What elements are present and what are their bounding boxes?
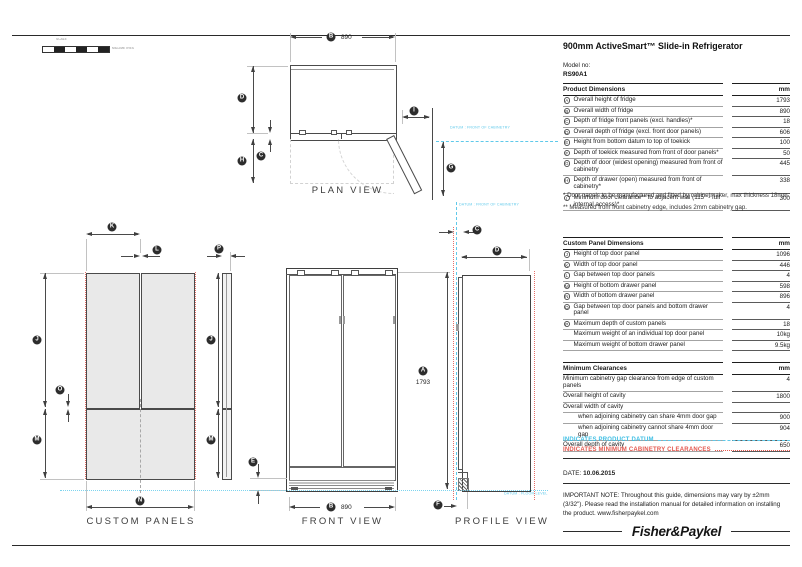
row-label: Maximum weight of an individual top door…: [563, 330, 723, 341]
row-value: 1096: [732, 250, 790, 261]
profile-handle-tab: [456, 324, 459, 331]
dimension-line: [45, 273, 46, 407]
row-label: BOverall width of fridge: [563, 107, 723, 118]
row-description: Height from bottom datum to top of toeki…: [574, 139, 691, 146]
model-number: RS90A1: [563, 71, 790, 78]
dimension-letter-badge: F: [564, 150, 571, 157]
dim-marker-a: A: [419, 367, 428, 376]
dim-marker-m: M: [207, 436, 216, 445]
table-row: BOverall width of fridge890: [563, 107, 790, 118]
table-row: DOverall depth of fridge (excl. front do…: [563, 128, 790, 139]
dim-marker-c: C: [473, 226, 482, 235]
dimension-letter-badge: D: [564, 129, 571, 136]
dim-marker-b: B: [327, 33, 336, 42]
dimension-letter-badge: A: [564, 97, 571, 104]
dim-marker-d: D: [238, 94, 247, 103]
front-height-value: 1793: [413, 379, 433, 386]
row-description: Width of bottom drawer panel: [574, 293, 655, 300]
row-label: Maximum weight of bottom drawer panel: [563, 341, 723, 352]
extension-line: [140, 239, 141, 253]
row-value: 18: [732, 117, 790, 128]
arrowhead: [451, 504, 457, 508]
date-row: DATE: 10.06.2015: [563, 470, 790, 477]
row-label: KWidth of top door panel: [563, 261, 723, 272]
door-edge-tab: [339, 316, 341, 324]
row-label: EHeight from bottom datum to top of toek…: [563, 138, 723, 149]
dimension-line: [443, 142, 444, 196]
plan-width-value: 890: [341, 34, 352, 41]
table-row: Minimum cabinetry gap clearance from edg…: [563, 375, 790, 392]
row-label: AOverall height of fridge: [563, 96, 723, 107]
panel-edge-inner-line: [226, 274, 227, 477]
table-row: EHeight from bottom datum to top of toek…: [563, 138, 790, 149]
arrowhead: [216, 273, 220, 279]
row-label: when adjoining cabinetry can share 4mm d…: [563, 413, 723, 424]
dimension-letter-badge: P: [564, 321, 571, 328]
extension-line: [40, 273, 84, 274]
footnote: * Door panels to be manufactured and fit…: [563, 192, 790, 200]
dim-marker-j: J: [207, 336, 216, 345]
plan-hinge: [331, 130, 337, 135]
extension-line: [250, 478, 287, 479]
legend-datum-label: INDICATES PRODUCT DATUM: [563, 437, 654, 443]
dimension-line: [293, 37, 322, 38]
arrowhead: [268, 127, 272, 133]
row-description: Depth of toekick measured from front of …: [574, 150, 719, 157]
datum-line: [436, 141, 558, 142]
table-row: PMaximum depth of custom panels18: [563, 320, 790, 331]
row-description: Minimum cabinetry gap clearance from edg…: [563, 376, 723, 390]
table-body: JHeight of top door panel1096KWidth of t…: [563, 250, 790, 351]
extension-line: [467, 492, 468, 509]
table-row: FDepth of toekick measured from front of…: [563, 149, 790, 160]
dimension-line: [236, 256, 245, 257]
dimension-letter-badge: M: [564, 283, 571, 290]
row-description: Depth of drawer (open) measured from fro…: [574, 177, 724, 191]
row-value: 100: [732, 138, 790, 149]
extension-line: [194, 481, 195, 511]
door-edge-tab: [393, 316, 395, 324]
date-value: 10.06.2015: [583, 470, 615, 477]
dimension-letter-badge: B: [564, 108, 571, 115]
row-description: Height of bottom drawer panel: [574, 283, 657, 290]
front-left-door: [289, 275, 342, 467]
arrowhead: [43, 401, 47, 407]
spec-sheet-page: SCALE MILLIMETRES B 890 D H C: [0, 0, 802, 567]
arrowhead: [43, 472, 47, 478]
table-unit: mm: [732, 362, 790, 375]
datum-floor-label: DATUM : FLOOR LEVEL: [504, 492, 548, 496]
arrowhead: [43, 409, 47, 415]
dimension-letter-badge: E: [564, 139, 571, 146]
row-label: OGap between top door panels and bottom …: [563, 303, 723, 320]
table-title: Product Dimensions: [563, 83, 723, 96]
clearance-line: [534, 271, 535, 500]
dim-marker-g: G: [447, 164, 456, 173]
dim-marker-c: C: [257, 152, 266, 161]
legend-datum-line-sample: [658, 440, 790, 441]
extension-line: [395, 497, 396, 511]
arrowhead: [448, 230, 454, 234]
panel-edge-view-top: [222, 273, 232, 409]
table-row: AOverall height of fridge1793: [563, 96, 790, 107]
dim-marker-m: M: [33, 436, 42, 445]
table-row: Maximum weight of an individual top door…: [563, 330, 790, 341]
dimension-line: [270, 120, 271, 127]
legend-clearances-row: INDICATES MINIMUM CABINETRY CLEARANCES: [563, 447, 790, 453]
row-description: Overall height of fridge: [574, 97, 636, 104]
plan-adjacent-wall: [432, 108, 433, 200]
row-value: 1793: [732, 96, 790, 107]
extension-line: [40, 479, 84, 480]
model-block: Model no: RS90A1: [563, 62, 790, 78]
dimension-line: [270, 145, 271, 152]
arrowhead: [134, 232, 140, 236]
profile-toekick-line: [458, 472, 467, 473]
table-title: Custom Panel Dimensions: [563, 237, 723, 250]
dimension-letter-badge: H: [564, 177, 571, 184]
arrowhead: [216, 472, 220, 478]
table-row: Maximum weight of bottom drawer panel9.5…: [563, 341, 790, 352]
table-row: OGap between top door panels and bottom …: [563, 303, 790, 320]
arrowhead: [43, 273, 47, 279]
dimension-line: [447, 272, 448, 489]
row-label: MHeight of bottom drawer panel: [563, 282, 723, 293]
extension-line: [398, 272, 450, 273]
top-door-panel-right: [141, 273, 195, 409]
row-description: Height of top door panel: [574, 251, 640, 258]
dim-marker-n: N: [136, 497, 145, 506]
row-label: LGap between top door panels: [563, 271, 723, 282]
dimension-line: [88, 234, 138, 235]
table-row: JHeight of top door panel1096: [563, 250, 790, 261]
dimension-letter-badge: O: [564, 304, 571, 311]
table-row: Overall height of cavity1800: [563, 392, 790, 403]
dimension-line: [258, 496, 259, 504]
arrowhead: [424, 115, 430, 119]
row-description: Maximum weight of bottom drawer panel: [574, 342, 685, 349]
bottom-rule: [12, 545, 790, 546]
arrowhead: [402, 115, 408, 119]
table-row: Overall width of cavity: [563, 403, 790, 413]
arrowhead: [290, 35, 296, 39]
row-description: Gap between top door panels and bottom d…: [574, 304, 724, 318]
scale-segment: [87, 47, 98, 52]
arrowhead: [251, 139, 255, 145]
table-row: KWidth of top door panel446: [563, 261, 790, 272]
profile-fridge-body: [462, 275, 531, 492]
dimension-letter-badge: C: [564, 118, 571, 125]
row-value: 598: [732, 282, 790, 293]
row-value: 50: [732, 149, 790, 160]
hinge: [297, 270, 305, 276]
row-value: 446: [732, 261, 790, 272]
arrowhead: [441, 190, 445, 196]
dim-marker-j: J: [33, 336, 42, 345]
dimension-letter-badge: N: [564, 293, 571, 300]
table-header: Minimum Clearances mm: [563, 362, 790, 375]
dimension-line: [253, 66, 254, 133]
arrowhead: [134, 254, 140, 258]
legend-datum-row: INDICATES PRODUCT DATUM: [563, 437, 790, 443]
hinge: [385, 270, 393, 276]
profile-view-label: PROFILE VIEW: [452, 516, 552, 527]
row-value: 445: [732, 159, 790, 176]
dimension-line: [45, 409, 46, 478]
arrowhead: [216, 254, 222, 258]
clearance-line: [453, 227, 454, 500]
row-value: 9.5kg: [732, 341, 790, 352]
row-value: 890: [732, 107, 790, 118]
arrowhead: [251, 66, 255, 72]
dimension-letter-badge: L: [564, 272, 571, 279]
row-label: NWidth of bottom drawer panel: [563, 292, 723, 303]
datum-front-label: DATUM : FRONT OF CABINETRY: [450, 126, 510, 130]
row-description: Depth of door (widest opening) measured …: [574, 160, 724, 174]
row-value: 4: [732, 303, 790, 320]
legend-clearances-line-sample: [715, 450, 790, 451]
arrowhead: [216, 409, 220, 415]
row-description: Overall depth of fridge (excl. front doo…: [574, 129, 702, 136]
scale-segment: [65, 47, 76, 52]
top-rule: [12, 35, 790, 36]
page-title: 900mm ActiveSmart™ Slide-in Refrigerator: [563, 41, 790, 51]
dim-marker-l: L: [153, 246, 162, 255]
plan-hinge: [299, 130, 306, 135]
row-label: Overall height of cavity: [563, 392, 723, 403]
extension-line: [86, 239, 87, 271]
scale-bar-label: SCALE: [56, 38, 67, 41]
scale-segment: [76, 47, 87, 52]
arrowhead: [445, 483, 449, 489]
dimension-line: [439, 232, 448, 233]
row-label: GDepth of door (widest opening) measured…: [563, 159, 723, 176]
arrowhead: [389, 505, 395, 509]
dimension-line: [68, 394, 69, 401]
table-row: GDepth of door (widest opening) measured…: [563, 159, 790, 176]
row-label: FDepth of toekick measured from front of…: [563, 149, 723, 160]
hinge: [351, 270, 359, 276]
front-view-label: FRONT VIEW: [295, 516, 390, 527]
arrowhead: [441, 142, 445, 148]
dim-marker-b: B: [327, 503, 336, 512]
dim-marker-o: O: [56, 386, 65, 395]
row-description: Overall width of fridge: [574, 108, 634, 115]
arrowhead: [389, 35, 395, 39]
dimension-line: [218, 409, 219, 478]
row-value: 900: [732, 413, 790, 424]
table-header: Product Dimensions mm: [563, 83, 790, 96]
arrowhead: [86, 232, 92, 236]
row-value: 18: [732, 320, 790, 331]
centerline: [140, 399, 141, 493]
scale-segment: [43, 47, 54, 52]
arrowhead: [289, 505, 295, 509]
row-description: Width of top door panel: [574, 262, 638, 269]
brand-logo: Fisher&Paykel: [622, 524, 731, 539]
dimension-line: [218, 273, 219, 407]
plan-hinge: [346, 130, 352, 135]
front-drawer-front: [289, 467, 396, 481]
row-label: JHeight of top door panel: [563, 250, 723, 261]
legend: INDICATES PRODUCT DATUM INDICATES MINIMU…: [563, 437, 790, 457]
panel-edge-view-bottom: [222, 409, 232, 480]
extension-line: [230, 252, 231, 271]
dim-marker-h: H: [238, 157, 247, 166]
front-width-value: 890: [341, 504, 352, 511]
arrowhead: [188, 505, 194, 509]
row-value: 1800: [732, 392, 790, 403]
row-label: PMaximum depth of custom panels: [563, 320, 723, 331]
dimension-letter-badge: J: [564, 251, 571, 258]
scale-bar: [42, 46, 110, 53]
arrowhead: [86, 505, 92, 509]
arrowhead: [142, 254, 148, 258]
arrowhead: [445, 272, 449, 278]
row-description: Maximum depth of custom panels: [574, 321, 667, 328]
dim-marker-d: D: [493, 247, 502, 256]
row-description: Maximum weight of an individual top door…: [574, 331, 705, 338]
table-title: Minimum Clearances: [563, 362, 723, 375]
table-row: LGap between top door panels4: [563, 271, 790, 282]
row-description: Overall height of cavity: [563, 393, 626, 400]
arrowhead: [521, 255, 527, 259]
arrowhead: [256, 472, 260, 478]
hinge: [331, 270, 339, 276]
dimension-line: [444, 506, 451, 507]
table-row: when adjoining cabinetry can share 4mm d…: [563, 413, 790, 424]
arrowhead: [251, 177, 255, 183]
dimension-line: [462, 257, 527, 258]
profile-front-panel: [458, 277, 464, 470]
table-row: CDepth of fridge front panels (excl. han…: [563, 117, 790, 128]
dimension-letter-badge: G: [564, 160, 571, 167]
row-label: Overall width of cavity: [563, 403, 723, 413]
logo-rule-right: [731, 531, 790, 532]
dimension-line: [207, 256, 216, 257]
dimension-line: [68, 415, 69, 422]
table-unit: mm: [732, 83, 790, 96]
row-description: Depth of fridge front panels (excl. hand…: [574, 118, 693, 125]
dim-marker-f: F: [434, 501, 443, 510]
custom-panels-label: CUSTOM PANELS: [72, 516, 210, 527]
row-label: Minimum cabinetry gap clearance from edg…: [563, 375, 723, 392]
front-toekick-grille: [289, 480, 394, 489]
dimension-line: [258, 464, 259, 472]
row-value: 606: [732, 128, 790, 139]
top-door-panel-left: [86, 273, 140, 409]
table-row: MHeight of bottom drawer panel598: [563, 282, 790, 293]
extension-line: [247, 133, 268, 134]
row-description: Gap between top door panels: [574, 272, 655, 279]
scale-bar-units: MILLIMETRES: [112, 47, 134, 50]
date-label: DATE:: [563, 470, 581, 477]
column-rule: [563, 458, 790, 459]
arrowhead: [461, 255, 467, 259]
dim-marker-i: I: [410, 107, 419, 116]
scale-segment: [98, 47, 109, 52]
row-value: 4: [732, 375, 790, 392]
logo-rule-left: [563, 531, 622, 532]
legend-clearances-label: INDICATES MINIMUM CABINETRY CLEARANCES: [563, 447, 711, 453]
dimension-line: [88, 507, 191, 508]
arrowhead: [251, 127, 255, 133]
footnote: ** Measured from front cabinetry edge, i…: [563, 204, 790, 212]
arrowhead: [66, 401, 70, 407]
row-label: CDepth of fridge front panels (excl. han…: [563, 117, 723, 128]
column-rule: [563, 483, 790, 484]
brand-block: Fisher&Paykel: [563, 524, 790, 539]
important-note: IMPORTANT NOTE: Throughout this guide, d…: [563, 492, 790, 519]
floor-datum-line: [60, 490, 548, 491]
dimension-letter-badge: K: [564, 262, 571, 269]
row-value: 896: [732, 292, 790, 303]
dimension-line: [148, 256, 160, 257]
custom-panel-dimensions-table: Custom Panel Dimensions mm JHeight of to…: [563, 237, 790, 351]
plan-inner-line: [291, 69, 394, 70]
plan-view-label: PLAN VIEW: [305, 185, 390, 196]
dimension-line: [121, 256, 133, 257]
dim-marker-e: E: [249, 458, 258, 467]
row-value: 10kg: [732, 330, 790, 341]
row-label: DOverall depth of fridge (excl. front do…: [563, 128, 723, 139]
row-value: 4: [732, 271, 790, 282]
row-description: when adjoining cabinetry can share 4mm d…: [563, 414, 717, 421]
front-right-door: [343, 275, 396, 467]
extension-line: [395, 33, 396, 62]
arrowhead: [216, 401, 220, 407]
datum-front-label: DATUM : FRONT OF CABINETRY: [459, 203, 519, 207]
row-value: [732, 403, 790, 413]
dim-marker-k: K: [108, 223, 117, 232]
dim-marker-p: P: [215, 245, 224, 254]
dimension-line: [292, 507, 320, 508]
row-description: Overall width of cavity: [563, 404, 623, 411]
footnotes: * Door panels to be manufactured and fit…: [563, 192, 790, 216]
extension-line: [529, 249, 530, 271]
plan-fridge-body: [290, 65, 397, 135]
table-row: NWidth of bottom drawer panel896: [563, 292, 790, 303]
scale-segment: [54, 47, 65, 52]
model-label: Model no:: [563, 62, 790, 69]
table-header: Custom Panel Dimensions mm: [563, 237, 790, 250]
table-unit: mm: [732, 237, 790, 250]
door-edge-tab: [343, 316, 345, 324]
